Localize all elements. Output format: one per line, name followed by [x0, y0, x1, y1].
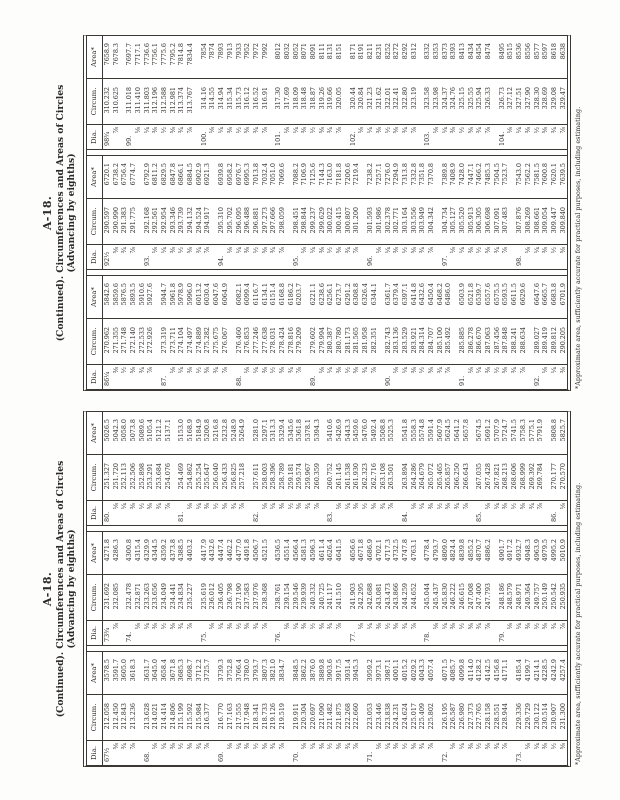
dia-cell: ⅝	[169, 125, 178, 149]
area-cell: 5944.7	[160, 276, 169, 318]
dia-cell: ¼	[217, 125, 226, 149]
circum-cell: 237.976	[252, 575, 261, 620]
area-cell: 4271.8	[103, 532, 112, 574]
dia-cell: ⅞	[501, 741, 510, 765]
circum-cell: 255.647	[203, 455, 212, 500]
dia-cell: ⅞	[278, 741, 287, 765]
area-cell: 5026.5	[103, 412, 112, 454]
area-cell: 6203.7	[295, 276, 304, 318]
col-header-area: Area*	[87, 276, 103, 318]
dia-cell: ⅛	[283, 621, 292, 645]
area-cell: 6486.0	[444, 276, 453, 318]
dia-cell: ⅛	[208, 125, 217, 149]
circum-cell: 305.913	[467, 199, 476, 244]
circum-cell: 265.857	[444, 455, 453, 500]
area-cell: 7144.3	[318, 156, 327, 198]
area-cell: 7795.2	[169, 36, 178, 78]
area-cell: 8211	[366, 36, 375, 78]
dia-cell: ⅝	[318, 125, 327, 149]
dia-cell: ⅜	[226, 621, 235, 645]
circum-cell: 273.319	[160, 319, 169, 364]
dia-cell: ⅞	[559, 125, 568, 149]
dia-cell: ¾	[326, 621, 335, 645]
area-cell: 6683.8	[550, 276, 559, 318]
circum-cell: 247.400	[475, 575, 484, 620]
dia-cell: ⅞	[313, 501, 322, 525]
circum-cell: 244.259	[401, 575, 410, 620]
circum-cell: 218.733	[261, 695, 270, 740]
area-cell: 4536.5	[274, 532, 283, 574]
dia-cell: ¼	[515, 621, 524, 645]
dia-cell: ⅞	[186, 621, 195, 645]
dia-cell: ⅜	[352, 501, 361, 525]
circum-cell: 241.117	[326, 575, 335, 620]
circum-cell: 290.597	[103, 199, 112, 244]
area-cell: 3848.5	[292, 652, 301, 694]
area-cell: 6238.6	[318, 276, 327, 318]
area-cell: 5691.2	[484, 412, 493, 454]
col-header-area: Area*	[87, 36, 103, 78]
circum-cell: 244.652	[410, 575, 419, 620]
dia-cell: ⅛	[432, 621, 441, 645]
dia-cell: ⅝	[243, 125, 252, 149]
dia-cell: ⅞	[186, 125, 195, 149]
dia-cell: ¾	[418, 741, 427, 765]
circum-cell: 301.593	[366, 199, 375, 244]
footnote: *Approximate area, sufficiently accurate…	[575, 411, 582, 767]
dia-cell: ⅞	[112, 621, 121, 645]
circum-cell: 215.984	[195, 695, 204, 740]
area-cell: 8191	[357, 36, 366, 78]
circum-cell: 315.73	[235, 79, 244, 124]
dia-cell: 101.	[274, 125, 283, 149]
area-cell: 7466.2	[475, 156, 484, 198]
dia-cell: ½	[160, 125, 169, 149]
table-column: Area*5026.55042.35058.05073.85089.65105.…	[87, 412, 567, 454]
dia-cell: ½	[177, 741, 186, 765]
area-cell: 4491.8	[243, 532, 252, 574]
dia-cell: ⅜	[392, 245, 401, 269]
table-subtitle: (Advancing by eighths)	[67, 35, 77, 391]
area-cell: 5089.6	[138, 412, 147, 454]
area-cell: 5476.0	[361, 412, 370, 454]
dia-cell: ¾	[269, 741, 278, 765]
dia-cell: ½	[475, 741, 484, 765]
dia-cell: ⅜	[169, 245, 178, 269]
dia-cell: ½	[326, 245, 335, 269]
area-cell: 3645.0	[151, 652, 160, 694]
area-cell: 5657.8	[462, 412, 471, 454]
col-header-circum: Circum.	[87, 695, 103, 740]
circum-cell: 221.482	[326, 695, 335, 740]
dia-cell: 102.	[349, 125, 358, 149]
area-cell: 8151	[335, 36, 344, 78]
dia-cell: ¼	[269, 501, 278, 525]
area-cell: 4029.2	[410, 652, 419, 694]
circum-cell: 223.053	[366, 695, 375, 740]
dia-cell: ⅝	[221, 501, 230, 525]
area-cell: 4855.2	[467, 532, 476, 574]
dia-cell: ⅝	[410, 245, 419, 269]
area-cell: 5168.9	[186, 412, 195, 454]
circum-cell: 313.374	[177, 79, 186, 124]
area-cell: 7163.0	[326, 156, 335, 198]
circum-cell: 323.98	[432, 79, 441, 124]
circum-cell: 251.327	[103, 455, 112, 500]
area-cell: 8171	[349, 36, 358, 78]
circum-cell: 314.55	[208, 79, 217, 124]
area-cell: 6720.1	[103, 156, 112, 198]
circum-cell: 227.373	[467, 695, 476, 740]
circum-cell: 326.33	[484, 79, 493, 124]
area-cell: 8272	[392, 36, 401, 78]
circum-cell: 239.154	[283, 575, 292, 620]
circum-cell: 272.140	[129, 319, 138, 364]
dia-cell: ⅛	[226, 245, 235, 269]
dia-cell: ½	[401, 245, 410, 269]
dia-cell: ⅛	[410, 501, 419, 525]
circum-cell: 253.684	[155, 455, 164, 500]
area-cell: 8111	[318, 36, 327, 78]
circum-cell: 220.304	[300, 695, 309, 740]
circum-cell: 276.460	[235, 319, 244, 364]
circum-cell: 275.675	[212, 319, 221, 364]
circum-cell: 289.027	[533, 319, 542, 364]
circum-cell: 270.570	[559, 455, 568, 500]
area-cell: 5607.9	[436, 412, 445, 454]
circum-cell: 225.802	[427, 695, 436, 740]
dia-cell: ¾	[120, 245, 129, 269]
area-cell: 6939.8	[217, 156, 226, 198]
area-cell: 6326.4	[361, 276, 370, 318]
circum-cell: 299.629	[318, 199, 327, 244]
dia-cell: ½	[309, 621, 318, 645]
circum-cell: 284.707	[427, 319, 436, 364]
area-cell: 5574.8	[418, 412, 427, 454]
circum-cell: 316.12	[243, 79, 252, 124]
dia-cell: ⅝	[186, 741, 195, 765]
circum-cell: 288.634	[519, 319, 528, 364]
area-cell: 5313.3	[269, 412, 278, 454]
circum-cell: 256.825	[230, 455, 239, 500]
circum-cell: 294.917	[203, 199, 212, 244]
circum-cell: 248.971	[515, 575, 524, 620]
area-cell: 6432.6	[418, 276, 427, 318]
circum-cell: 303.949	[418, 199, 427, 244]
column-group: Dia.67½⅝¾⅞68.⅛¼⅜½⅝¾⅞69.⅛¼⅜½⅝¾⅞70.⅛¼⅜½⅝¾⅞…	[87, 652, 567, 765]
circum-cell: 217.163	[226, 695, 235, 740]
dia-cell: ⅞	[335, 621, 344, 645]
area-cell: 4979.5	[541, 532, 550, 574]
col-header-area: Area*	[87, 412, 103, 454]
dia-cell: ¼	[292, 125, 301, 149]
area-cell: 4809.0	[441, 532, 450, 574]
circum-cell: 286.278	[467, 319, 476, 364]
table-column: Circum.290.597290.990291.383291.775292.1…	[87, 198, 567, 245]
circum-cell: 320.44	[349, 79, 358, 124]
area-cell: 4214.1	[533, 652, 542, 694]
dia-cell: ⅜	[318, 245, 327, 269]
circum-cell: 292.954	[160, 199, 169, 244]
circum-cell: 309.054	[541, 199, 550, 244]
circum-cell: 268.213	[501, 455, 510, 500]
circle-table: Dia.67½⅝¾⅞68.⅛¼⅜½⅝¾⅞69.⅛¼⅜½⅝¾⅞70.⅛¼⅜½⅝¾⅞…	[83, 411, 571, 767]
circum-cell: 309.447	[550, 199, 559, 244]
circum-cell: 257.611	[252, 455, 261, 500]
area-cell: 6976.7	[235, 156, 244, 198]
circum-cell: 225.017	[410, 695, 419, 740]
circum-cell: 276.853	[243, 319, 252, 364]
circum-cell: 240.725	[318, 575, 327, 620]
area-cell: 4085.7	[449, 652, 458, 694]
area-cell: 5541.8	[401, 412, 410, 454]
circum-cell: 323.19	[410, 79, 419, 124]
circum-cell: 291.383	[120, 199, 129, 244]
area-cell: 6151.4	[269, 276, 278, 318]
group-separator-rule	[87, 645, 567, 652]
circum-cell: 326.73	[498, 79, 507, 124]
table-column: Circum.231.692232.085232.478232.871233.2…	[87, 574, 567, 621]
area-cell: 8292	[401, 36, 410, 78]
area-cell: 5345.6	[287, 412, 296, 454]
circum-cell: 233.656	[151, 575, 160, 620]
area-cell: 4886.2	[484, 532, 493, 574]
circum-cell: 251.720	[112, 455, 121, 500]
dia-cell: ⅜	[318, 741, 327, 765]
area-cell: 7972	[252, 36, 261, 78]
dia-cell: ¼	[143, 125, 152, 149]
circum-cell: 287.063	[484, 319, 493, 364]
circum-cell: 294.132	[186, 199, 195, 244]
dia-cell: ¾	[493, 741, 502, 765]
col-header-dia: Dia.	[87, 741, 103, 765]
area-cell: 3807.3	[261, 652, 270, 694]
circum-cell: 241.510	[335, 575, 344, 620]
dia-cell: ⅞	[427, 741, 436, 765]
circum-cell: 219.126	[269, 695, 278, 740]
area-cell: 8231	[375, 36, 384, 78]
circum-cell: 214.021	[151, 695, 160, 740]
dia-cell: ⅜	[524, 621, 533, 645]
dia-cell: 72.	[441, 741, 450, 765]
dia-cell: ¼	[120, 501, 129, 525]
table-column: Area*7658.97678.37697.77717.17736.67756.…	[87, 36, 567, 78]
dia-cell: ⅛	[226, 741, 235, 765]
area-cell: 6361.7	[384, 276, 393, 318]
circum-cell: 277.638	[261, 319, 270, 364]
circum-cell: 217.555	[235, 695, 244, 740]
dia-cell: ⅞	[484, 621, 493, 645]
area-cell: 6539.7	[475, 276, 484, 318]
area-cell: 7032.4	[261, 156, 270, 198]
circum-cell: 289.419	[541, 319, 550, 364]
table-column: Dia.73¾⅞74.⅛¼⅜½⅝¾⅞75.⅛¼⅜½⅝¾⅞76.⅛¼⅜½⅝¾⅞77…	[87, 621, 567, 645]
circum-cell: 285.492	[444, 319, 453, 364]
area-cell: 7051.0	[269, 156, 278, 198]
area-cell: 5297.1	[261, 412, 270, 454]
area-cell: 7351.8	[418, 156, 427, 198]
dia-cell: ⅜	[375, 621, 384, 645]
area-cell: 8536	[515, 36, 524, 78]
area-cell: 4793.7	[432, 532, 441, 574]
circum-cell: 232.085	[112, 575, 121, 620]
area-cell: 7814.8	[177, 36, 186, 78]
dia-cell: ½	[436, 501, 445, 525]
circum-cell: 225.409	[418, 695, 427, 740]
area-cell: 4581.3	[300, 532, 309, 574]
circum-cell: 294.524	[195, 199, 204, 244]
area-cell: 3712.2	[195, 652, 204, 694]
col-header-area: Area*	[87, 156, 103, 198]
circum-cell: 250.149	[541, 575, 550, 620]
area-cell: 8131	[326, 36, 335, 78]
dia-cell: ⅞	[164, 501, 173, 525]
circum-cell: 261.930	[352, 455, 361, 500]
circum-cell: 270.177	[550, 455, 559, 500]
circum-cell: 305.520	[458, 199, 467, 244]
circum-cell: 254.469	[177, 455, 186, 500]
area-cell: 4671.8	[357, 532, 366, 574]
dia-cell: ⅞	[501, 245, 510, 269]
dia-cell: 74.	[125, 621, 134, 645]
area-cell: 5121.2	[155, 412, 164, 454]
circum-cell: 291.775	[129, 199, 138, 244]
circum-cell: 230.122	[533, 695, 542, 740]
table-column: Dia.98¾⅞99.⅛¼⅜½⅝¾⅞100.⅛¼⅜½⅝¾⅞101.⅛¼⅜½⅝¾⅞…	[87, 125, 567, 149]
dia-cell: 85.	[475, 501, 484, 525]
area-cell: 5281.0	[252, 412, 261, 454]
area-cell: 7562.2	[524, 156, 533, 198]
circum-cell: 308.661	[533, 199, 542, 244]
area-cell: 7697.7	[125, 36, 134, 78]
circum-cell: 243.081	[375, 575, 384, 620]
area-cell: 7775.6	[160, 36, 169, 78]
circum-cell: 309.840	[559, 199, 568, 244]
dia-cell: ⅞	[203, 245, 212, 269]
area-cell: 6921.3	[203, 156, 212, 198]
circum-cell: 267.428	[484, 455, 493, 500]
area-cell: 7370.8	[427, 156, 436, 198]
area-cell: 6082.1	[235, 276, 244, 318]
circum-cell: 296.881	[252, 199, 261, 244]
circum-cell: 327.51	[515, 79, 524, 124]
circum-cell: 311.803	[143, 79, 152, 124]
dia-cell: ⅛	[261, 501, 270, 525]
area-cell: 5724.7	[501, 412, 510, 454]
circum-cell: 282.351	[370, 319, 379, 364]
circum-cell: 310.232	[103, 79, 112, 124]
col-header-area: Area*	[87, 532, 103, 574]
area-cell: 7485.3	[484, 156, 493, 198]
area-cell: 4763.1	[410, 532, 419, 574]
dia-cell: ⅛	[432, 125, 441, 149]
dia-cell: ¾	[269, 245, 278, 269]
dia-cell: ¼	[384, 741, 393, 765]
area-cell: 5758.3	[519, 412, 528, 454]
dia-cell: ½	[252, 245, 261, 269]
area-cell: 6116.7	[252, 276, 261, 318]
table-column: Area*3578.53591.73605.03618.33631.73645.…	[87, 652, 567, 694]
area-cell: 5378.1	[304, 412, 313, 454]
dia-cell: ⅜	[427, 501, 436, 525]
dia-cell: ⅜	[151, 621, 160, 645]
circum-cell: 217.948	[243, 695, 252, 740]
circum-cell: 216.377	[203, 695, 212, 740]
area-cell: 8454	[475, 36, 484, 78]
circum-cell: 269.392	[528, 455, 537, 500]
circum-cell: 254.862	[186, 455, 195, 500]
area-cell: 6738.2	[112, 156, 121, 198]
area-cell: 3945.3	[352, 652, 361, 694]
dia-cell: ⅝	[112, 245, 121, 269]
area-cell: 6557.6	[484, 276, 493, 318]
circum-cell: 271.748	[120, 319, 129, 364]
circum-cell: 241.903	[349, 575, 358, 620]
circum-cell: 226.980	[458, 695, 467, 740]
area-cell: 4057.4	[427, 652, 436, 694]
area-cell: 7543.0	[515, 156, 524, 198]
dia-cell: ¾	[401, 125, 410, 149]
table-column: Circum.310.232310.625311.018311.410311.8…	[87, 78, 567, 125]
dia-cell: ⅝	[261, 741, 270, 765]
area-cell: 6575.5	[493, 276, 502, 318]
dia-cell: 80.	[103, 501, 112, 525]
area-cell: 4901.7	[498, 532, 507, 574]
area-cell: 4596.3	[309, 532, 318, 574]
dia-cell: ⅝	[243, 621, 252, 645]
dia-cell: ½	[235, 621, 244, 645]
area-cell: 4257.4	[559, 652, 568, 694]
table-column: Circum.212.058212.450212.843213.236213.6…	[87, 694, 567, 741]
dia-cell: ⅛	[449, 741, 458, 765]
circum-cell: 296.095	[235, 199, 244, 244]
dia-cell: ⅞	[203, 741, 212, 765]
circum-cell: 290.990	[112, 199, 121, 244]
circum-cell: 290.205	[559, 319, 568, 364]
dia-cell: ⅝	[467, 621, 476, 645]
circum-cell: 273.711	[169, 319, 178, 364]
dia-cell: ⅝	[392, 125, 401, 149]
area-cell: 5707.9	[493, 412, 502, 454]
area-cell: 7933	[235, 36, 244, 78]
circum-cell: 298.844	[300, 199, 309, 244]
area-cell: 4824.4	[449, 532, 458, 574]
circum-cell: 262.323	[361, 455, 370, 500]
area-cell: 5791.9	[536, 412, 545, 454]
circum-cell: 215.592	[186, 695, 195, 740]
dia-cell: ⅞	[352, 245, 361, 269]
dia-cell: ⅞	[387, 501, 396, 525]
area-cell: 7736.6	[143, 36, 152, 78]
area-cell: 4015.2	[401, 652, 410, 694]
circum-cell: 264.679	[418, 455, 427, 500]
circum-cell: 303.556	[410, 199, 419, 244]
dia-cell: ⅛	[484, 501, 493, 525]
area-cell: 8332	[423, 36, 432, 78]
dia-cell: 77.	[349, 621, 358, 645]
dia-cell: ⅜	[129, 501, 138, 525]
area-cell: 7428.0	[458, 156, 467, 198]
circum-cell: 270.962	[103, 319, 112, 364]
dia-cell: ⅛	[151, 741, 160, 765]
circum-cell: 306.305	[475, 199, 484, 244]
area-cell: 7504.5	[493, 156, 502, 198]
scanned-page-upper: A-18. (Continued). Circumferences and Ar…	[0, 0, 620, 400]
dia-cell: ⅛	[375, 245, 384, 269]
area-cell: 3959.2	[366, 652, 375, 694]
area-cell: 6866.1	[177, 156, 186, 198]
area-cell: 4171.1	[501, 652, 510, 694]
